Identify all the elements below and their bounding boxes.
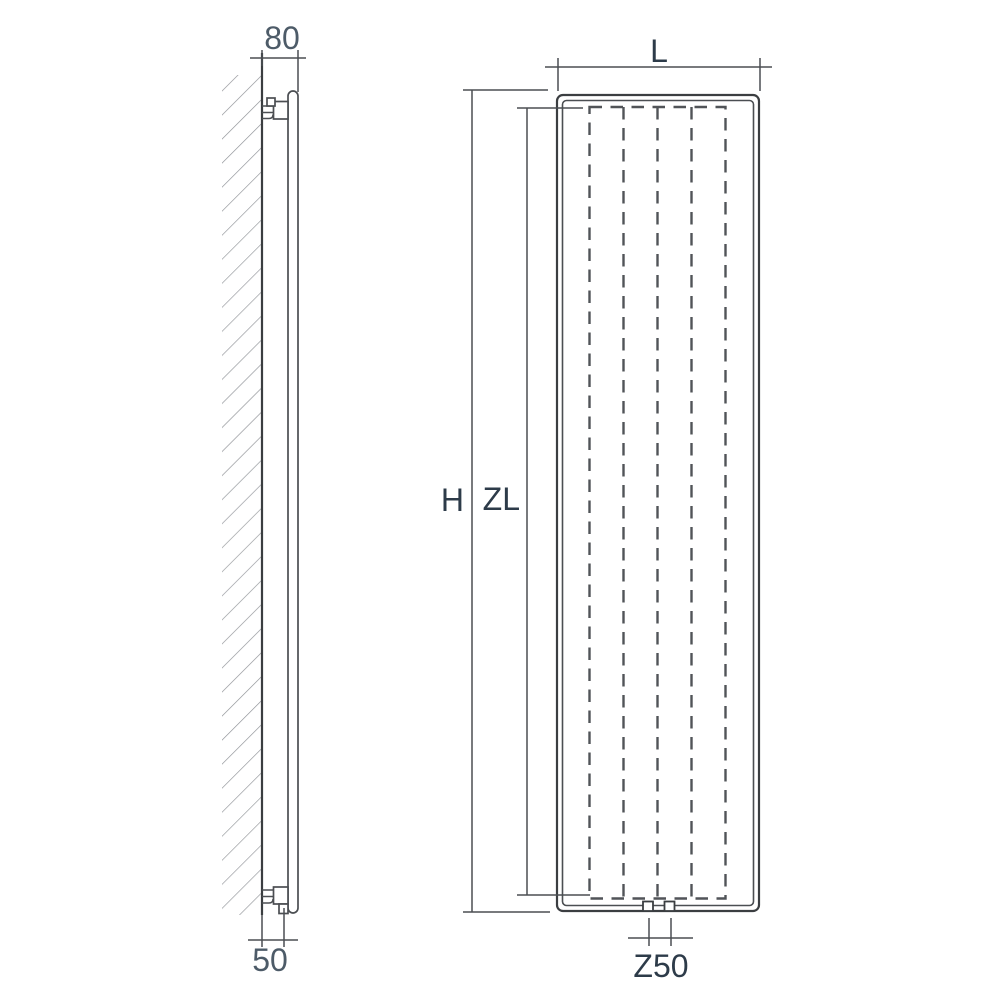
radiator-dimension-drawing: 80 50 L bbox=[0, 0, 1000, 1000]
dimension-bottom-offset-50: 50 bbox=[248, 908, 298, 978]
dimension-label: 50 bbox=[252, 942, 288, 978]
front-view: L H ZL Z50 bbox=[441, 33, 772, 984]
dimension-label: H bbox=[441, 482, 464, 518]
bracket-clamp-block bbox=[274, 887, 289, 904]
connection-stub-left bbox=[643, 902, 653, 912]
wall-hatching bbox=[222, 75, 262, 915]
radiator-panel-profile bbox=[288, 91, 298, 913]
connection-stub-right bbox=[665, 902, 675, 912]
drawing-canvas: 80 50 L bbox=[0, 0, 1000, 1000]
dimension-label: ZL bbox=[483, 481, 520, 517]
top-mounting-bracket bbox=[262, 98, 288, 119]
dimension-label: L bbox=[650, 33, 668, 69]
air-vent-square bbox=[267, 98, 275, 106]
dimension-connection-Z50: Z50 bbox=[628, 918, 693, 984]
side-profile-view: 80 50 bbox=[222, 20, 306, 978]
bracket-foot-hook bbox=[262, 115, 273, 119]
dimension-label: Z50 bbox=[633, 948, 688, 984]
bracket-foot-hook bbox=[262, 899, 273, 903]
dimension-length-L: L bbox=[545, 33, 772, 91]
dimension-label: 80 bbox=[264, 20, 300, 56]
